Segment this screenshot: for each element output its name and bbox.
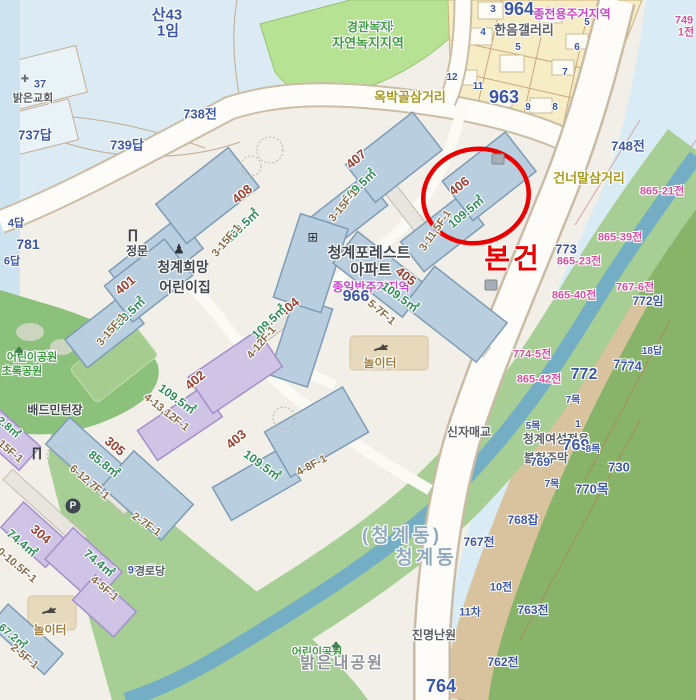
- map-label: 406: [446, 174, 471, 198]
- map-label: 764: [426, 677, 456, 695]
- map-label: 781: [16, 237, 39, 251]
- map-label: 408: [230, 182, 255, 206]
- map-label: 748전: [611, 140, 645, 153]
- map-label: 놀이터: [33, 624, 66, 636]
- map-label: 403: [224, 427, 249, 451]
- map-label: 6: [574, 43, 580, 53]
- playground-icon: [41, 608, 57, 618]
- map-label: 865-40전: [552, 291, 596, 302]
- map-label: 774: [620, 360, 642, 373]
- label-layer: 본건 산431임37밝은교회737답739답738전4답7816답965공경관녹…: [0, 0, 696, 700]
- map-label: 772: [571, 367, 598, 383]
- map-label: 11차: [459, 608, 481, 619]
- map-label: 109.5㎡: [241, 448, 282, 482]
- church-icon: ✚: [21, 75, 29, 85]
- map-label: 한음갤러리: [494, 24, 554, 37]
- map-label: 763전: [517, 604, 548, 616]
- map-label: 109.5㎡: [446, 194, 486, 230]
- map-label: 밝은교회: [13, 94, 53, 105]
- map-label: 7목: [566, 396, 581, 406]
- map-label: 2-7F-1: [130, 511, 163, 539]
- map-label: 1: [575, 420, 581, 430]
- map-label: 4: [480, 28, 486, 38]
- subject-label: 본건: [484, 245, 542, 273]
- map-label: 773: [555, 243, 577, 256]
- map-label: 18답: [642, 347, 662, 357]
- map-label: 963: [489, 88, 519, 106]
- map-label: 5: [584, 18, 590, 28]
- map-label: 15F-1: [0, 439, 25, 466]
- map-label: 경로당: [135, 567, 165, 578]
- apartment-icon: ⊞: [308, 231, 319, 244]
- map-label: 402: [183, 368, 208, 392]
- map-label: 772임: [632, 295, 663, 307]
- map-label: 배드민턴장: [27, 404, 82, 416]
- map-label: 옥박골삼거리: [374, 91, 446, 104]
- playground-icon: [373, 345, 389, 355]
- map-label: 초록공원: [2, 367, 42, 378]
- gate-icon: ∏: [32, 446, 43, 459]
- map-label: 진명난원: [412, 629, 456, 641]
- map-label: 5: [515, 43, 521, 53]
- map-label: 아파트: [350, 263, 391, 278]
- map-label: 1임: [157, 24, 179, 39]
- map-label: 865-23전: [557, 257, 601, 268]
- map-label: 7: [562, 68, 568, 78]
- map-label: 770목: [575, 483, 609, 496]
- park-tree-icon: ♣: [15, 344, 24, 357]
- map-label: 3-11,5F-1: [418, 209, 454, 254]
- map-label: 청계희망: [157, 260, 209, 274]
- map-label: 산43: [152, 8, 183, 23]
- map-label: 737답: [18, 129, 52, 142]
- map-label: 어린이집: [159, 280, 211, 294]
- map-label: 865-21전: [640, 187, 684, 198]
- map-label: 5목: [526, 422, 541, 432]
- map-label: 11: [473, 82, 484, 92]
- map-label: 749: [675, 16, 693, 27]
- map-label: 건너말삼거리: [553, 172, 625, 185]
- map-label: 정문: [126, 245, 148, 257]
- map-label: 10전: [490, 583, 512, 594]
- map-marker-icon: [485, 280, 498, 291]
- map-label: 1전: [678, 28, 694, 39]
- map-label: 767-6전: [616, 283, 654, 294]
- map-label: 407: [344, 147, 369, 171]
- map-label: 730: [608, 461, 630, 474]
- map-label: 8: [552, 103, 558, 113]
- map-label: 경관녹지: [347, 21, 391, 33]
- map-marker-icon: [492, 154, 505, 165]
- map-label: 6답: [4, 257, 20, 268]
- map-label: 768잡: [507, 514, 538, 526]
- map-label: 865-39전: [598, 233, 642, 244]
- main-gate-icon: ∏: [128, 228, 139, 241]
- map-label: 12: [446, 73, 457, 83]
- map-label: 3-15F-1: [95, 312, 128, 349]
- map-label: 3-15F-1: [210, 223, 243, 260]
- map-label: 자연녹지지역: [332, 37, 404, 50]
- daycare-icon: ♟: [173, 243, 185, 256]
- map-label: 종전용주거지역: [533, 8, 610, 20]
- map-label: 865-42전: [517, 375, 561, 386]
- map-label: 964: [504, 0, 534, 18]
- map-label: 37: [34, 80, 46, 91]
- map-label: 4-8F-1: [295, 454, 329, 479]
- map-label: 5-7F-1: [365, 298, 397, 327]
- map-label: 밝은내공원: [300, 656, 384, 672]
- map-label: 767전: [463, 536, 494, 548]
- map-label: 305: [103, 434, 128, 458]
- map-label: 3: [490, 5, 496, 15]
- map-label: 739답: [110, 139, 144, 152]
- map-label: 966: [343, 289, 370, 305]
- map-canvas[interactable]: 본건 산431임37밝은교회737답739답738전4답7816답965공경관녹…: [0, 0, 696, 700]
- map-label: 청계동: [395, 549, 456, 568]
- map-label: 4-5F-1: [88, 574, 120, 603]
- map-label: 9: [525, 103, 531, 113]
- map-label: 신자매교: [447, 426, 491, 438]
- map-label: 놀이터: [363, 357, 396, 369]
- map-label: 738전: [183, 108, 217, 121]
- map-label: 769: [530, 456, 550, 468]
- map-label: 8목: [586, 445, 601, 455]
- map-label: 4답: [8, 219, 24, 230]
- map-label: (청계동): [362, 527, 442, 546]
- map-label: 청계포레스트: [328, 246, 411, 261]
- map-label: 74.4㎡: [82, 547, 117, 579]
- park-tree-icon: ♣: [332, 639, 341, 652]
- map-label: 774-5전: [513, 350, 551, 361]
- parking-icon: P: [66, 499, 81, 514]
- map-label: 401: [113, 273, 138, 297]
- map-label: 762전: [487, 656, 518, 668]
- map-label: 7목: [545, 480, 560, 490]
